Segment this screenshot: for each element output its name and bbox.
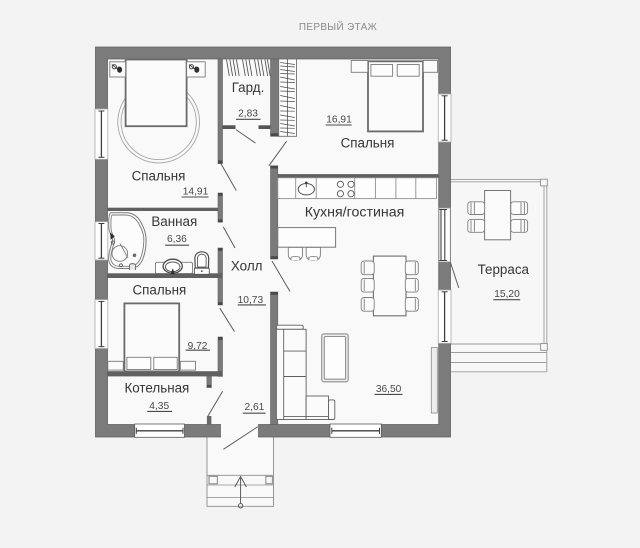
- svg-text:2,83: 2,83: [238, 109, 258, 120]
- svg-text:Гард.: Гард.: [232, 80, 265, 95]
- svg-text:Котельная: Котельная: [124, 381, 189, 396]
- svg-text:2,61: 2,61: [244, 402, 264, 413]
- svg-text:Спальня: Спальня: [132, 282, 186, 297]
- svg-text:14,91: 14,91: [183, 186, 209, 197]
- svg-text:Ванная: Ванная: [151, 214, 197, 229]
- svg-text:Спальня: Спальня: [341, 135, 395, 150]
- svg-text:Холл: Холл: [231, 258, 263, 273]
- svg-text:Спальня: Спальня: [132, 169, 186, 184]
- svg-text:36,50: 36,50: [376, 384, 402, 395]
- svg-text:6,36: 6,36: [167, 234, 187, 245]
- svg-text:ПЕРВЫЙ ЭТАЖ: ПЕРВЫЙ ЭТАЖ: [299, 20, 378, 33]
- svg-text:Кухня/гостиная: Кухня/гостиная: [305, 204, 405, 220]
- svg-text:15,20: 15,20: [494, 289, 520, 300]
- svg-text:Терраса: Терраса: [478, 262, 530, 277]
- svg-text:16,91: 16,91: [326, 114, 352, 125]
- svg-text:4,35: 4,35: [149, 401, 169, 412]
